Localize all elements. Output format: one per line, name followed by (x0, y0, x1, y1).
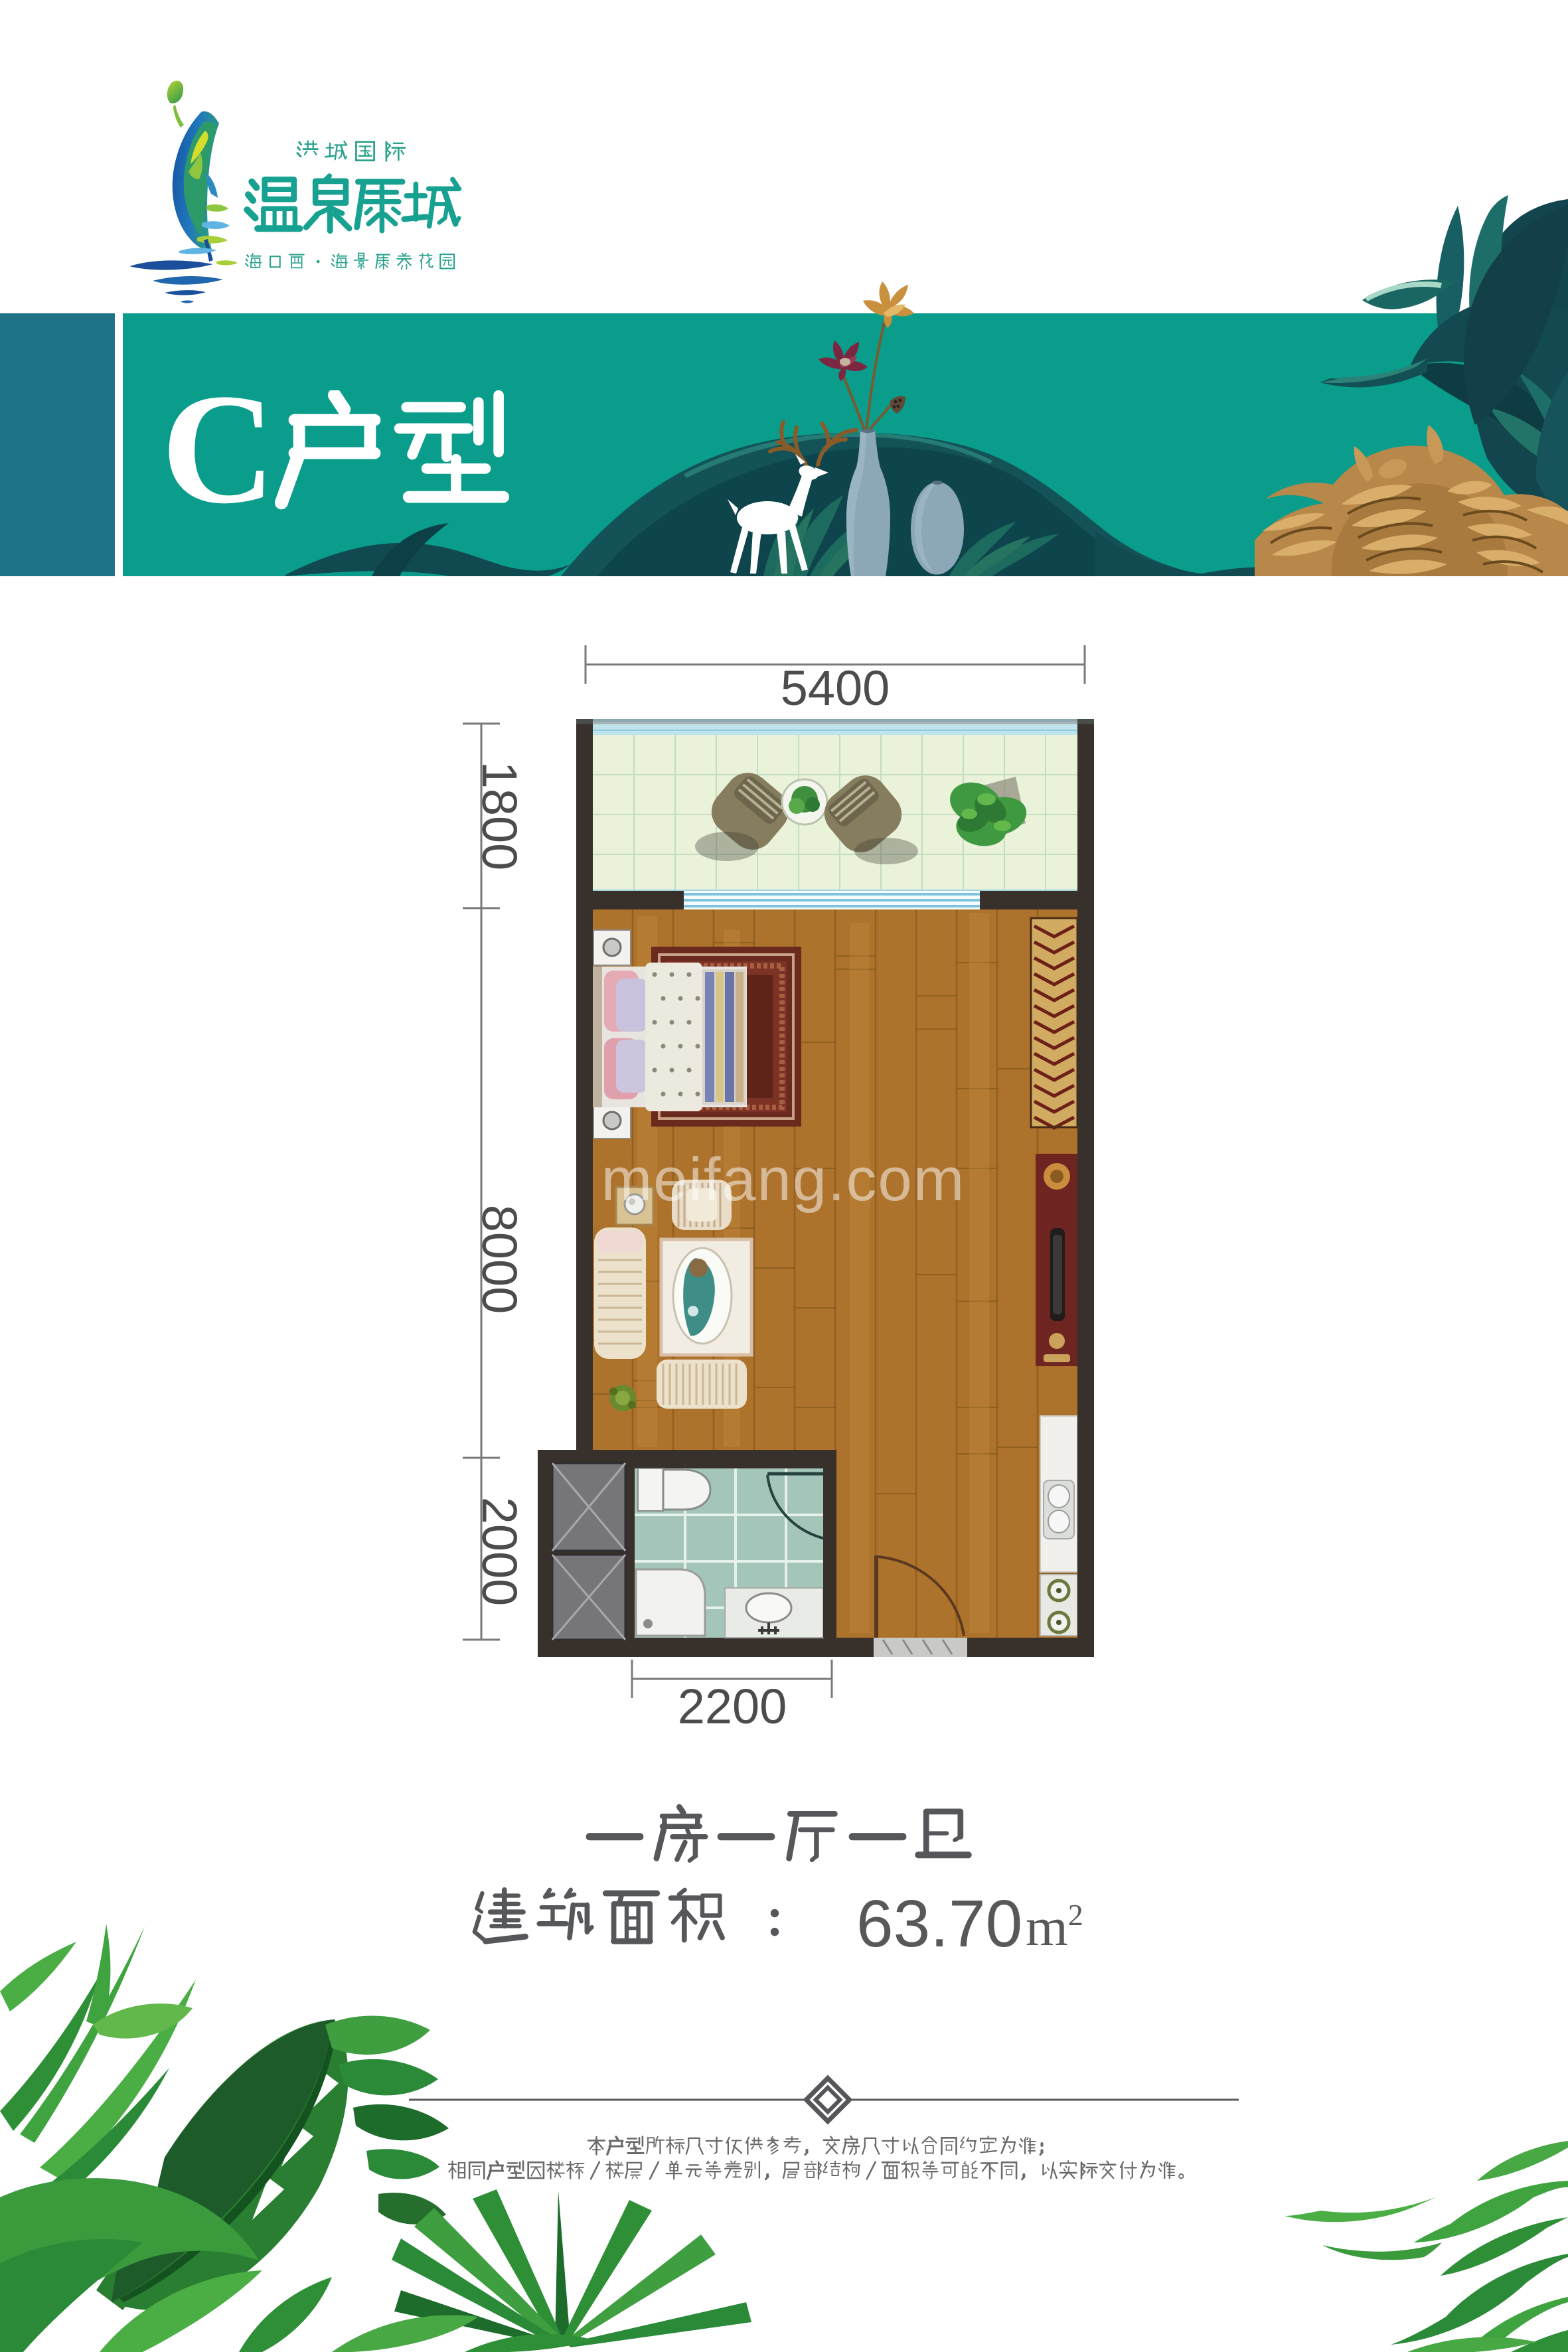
svg-text:63.70: 63.70 (856, 1887, 1022, 1961)
svg-text:1800: 1800 (472, 761, 527, 871)
svg-text:5400: 5400 (781, 661, 890, 716)
svg-text:2200: 2200 (678, 1679, 787, 1734)
svg-text:meifang.com: meifang.com (601, 1146, 966, 1214)
svg-text:8000: 8000 (472, 1205, 527, 1314)
svg-text:2000: 2000 (472, 1497, 527, 1607)
svg-text:m2: m2 (1026, 1897, 1083, 1957)
